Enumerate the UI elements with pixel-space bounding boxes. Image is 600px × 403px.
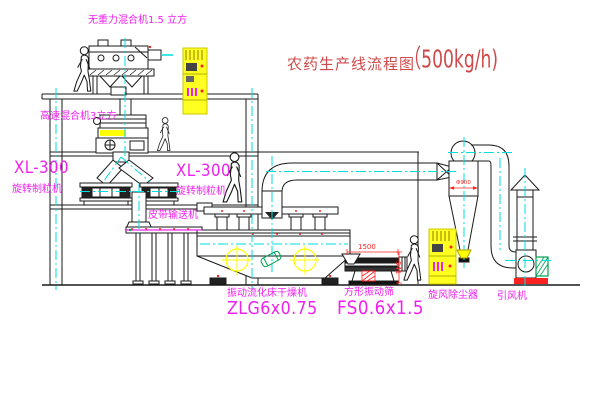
indicator-dot — [449, 265, 452, 268]
conveyor-mark — [129, 229, 131, 231]
belt-conveyor — [126, 227, 202, 284]
cyclone-discharge — [457, 250, 471, 258]
worker-figure-roof — [74, 47, 91, 91]
label-fan: 引风机 — [497, 292, 527, 302]
label-high-speed-mixer: 高速混合机3立方 — [40, 112, 116, 122]
dim-screen-length: 1500 — [358, 244, 376, 251]
label-belt-conveyor: 皮带输送机 — [148, 211, 198, 221]
label-dryer-model: ZLG6x0.75 — [227, 300, 318, 318]
flow-diagram-page: 农药生产线流程图 （500kg/h) 无重力混合机1.5 立方 高速混合机3立方… — [0, 0, 600, 403]
diagram-title-capacity: （500kg/h) — [404, 48, 498, 73]
label-granulator-right-name: 旋转制粒机 — [176, 187, 226, 197]
indicator-dot — [450, 246, 453, 249]
dim-cyclone-diameter: Φ900 — [456, 181, 471, 187]
worker-figure-floor2 — [157, 118, 170, 151]
granulator-left — [80, 183, 132, 205]
zero-gravity-mixer — [86, 40, 161, 115]
label-cyclone: 旋风除尘器 — [428, 291, 478, 301]
control-cabinet-top — [183, 48, 207, 114]
diagram-title: 农药生产线流程图 — [287, 57, 415, 72]
label-granulator-left-model: XL-300 — [14, 160, 69, 177]
indicator-dot — [201, 90, 204, 93]
indicator-dot — [201, 65, 204, 68]
label-granulator-right-model: XL-300 — [176, 163, 231, 180]
label-granulator-left-name: 旋转制粒机 — [12, 185, 62, 195]
y-duct — [97, 152, 153, 186]
dim-screen-height: 541 — [394, 261, 401, 274]
fan-base — [514, 278, 548, 284]
label-screen-model: FS0.6x1.5 — [337, 299, 424, 318]
label-zero-gravity-mixer: 无重力混合机1.5 立方 — [88, 16, 187, 26]
mixer-highlight — [100, 130, 126, 136]
induced-draft-fan — [514, 250, 548, 284]
control-cabinet-bottom — [429, 229, 456, 284]
